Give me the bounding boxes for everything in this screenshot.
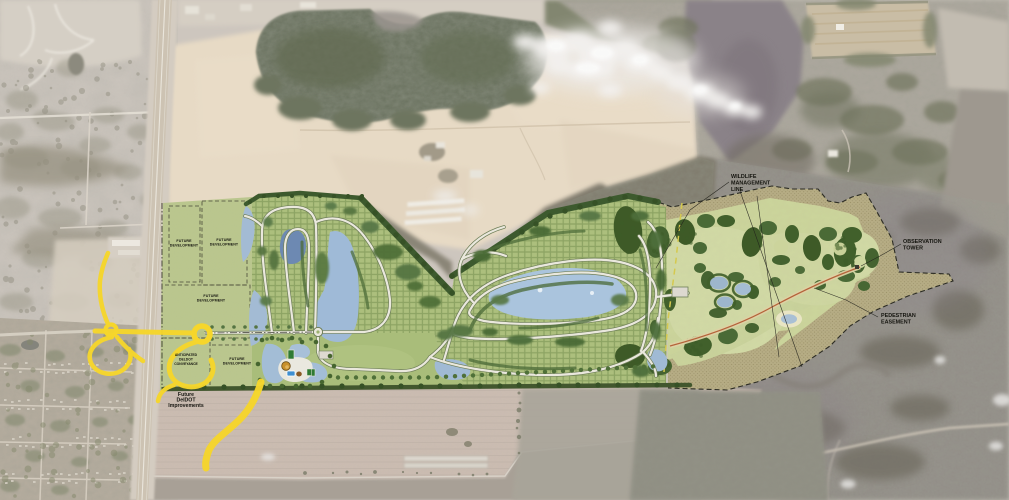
svg-text:FUTURE: FUTURE [203,294,219,298]
svg-text:MANAGEMENT: MANAGEMENT [731,181,771,187]
svg-text:DEVELOPMENT: DEVELOPMENT [210,243,239,247]
svg-text:TOWER: TOWER [903,246,923,252]
svg-text:FUTURE: FUTURE [176,239,192,243]
svg-text:WILDLIFE: WILDLIFE [731,174,757,180]
svg-text:PEDESTRIAN: PEDESTRIAN [881,313,916,319]
svg-text:EASEMENT: EASEMENT [881,320,912,326]
svg-text:DELDOT: DELDOT [179,358,194,362]
svg-text:LINE: LINE [731,187,744,193]
svg-text:ANTICIPATED: ANTICIPATED [175,353,198,357]
svg-text:CONVEYANCE: CONVEYANCE [174,362,198,366]
svg-text:FUTURE: FUTURE [229,357,245,361]
svg-text:Improvements: Improvements [168,403,204,409]
svg-text:DEVELOPMENT: DEVELOPMENT [170,244,199,248]
svg-text:FUTURE: FUTURE [216,238,232,242]
svg-text:DEVELOPMENT: DEVELOPMENT [197,299,226,303]
svg-text:OBSERVATION: OBSERVATION [903,239,942,245]
svg-text:DEVELOPMENT: DEVELOPMENT [223,362,252,366]
